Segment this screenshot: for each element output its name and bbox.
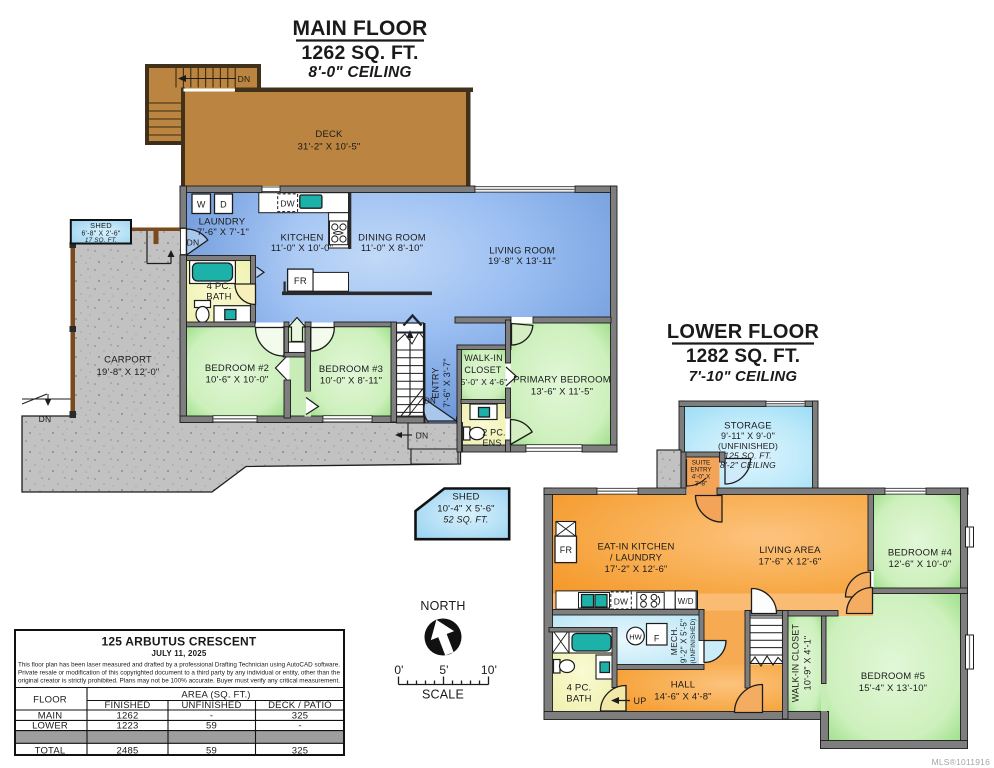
svg-text:DW: DW: [614, 597, 629, 607]
svg-text:(UNFINISHED): (UNFINISHED): [690, 618, 697, 663]
svg-text:SHED: SHED: [90, 221, 112, 230]
svg-text:8'-0" CEILING: 8'-0" CEILING: [308, 64, 411, 81]
svg-text:W/D: W/D: [678, 597, 694, 606]
svg-text:W: W: [197, 200, 206, 210]
svg-text:59: 59: [206, 721, 217, 732]
svg-text:SUITE: SUITE: [692, 460, 711, 467]
svg-text:LIVING AREA: LIVING AREA: [759, 545, 821, 556]
svg-text:125 ARBUTUS CRESCENT: 125 ARBUTUS CRESCENT: [102, 635, 257, 649]
svg-text:9'-11" X 9'-0": 9'-11" X 9'-0": [721, 431, 775, 441]
svg-text:CLOSET: CLOSET: [464, 365, 502, 375]
svg-text:10'-4" X 5'-6": 10'-4" X 5'-6": [437, 504, 495, 515]
svg-text:DINING ROOM: DINING ROOM: [358, 233, 426, 244]
svg-text:DECK: DECK: [315, 129, 343, 140]
svg-text:JULY 11, 2025: JULY 11, 2025: [151, 649, 206, 658]
svg-text:4'-0" X: 4'-0" X: [692, 474, 711, 481]
svg-text:DN: DN: [187, 238, 200, 248]
svg-text:13'-6" X 11'-5": 13'-6" X 11'-5": [531, 387, 593, 398]
svg-text:BEDROOM #4: BEDROOM #4: [888, 548, 952, 559]
svg-text:11'-0" X 10'-0": 11'-0" X 10'-0": [271, 243, 333, 254]
svg-text:Private resale or modification: Private resale or modification of this c…: [18, 670, 340, 677]
svg-text:FLOOR: FLOOR: [33, 695, 67, 706]
svg-text:10': 10': [481, 663, 497, 677]
svg-text:59: 59: [206, 745, 217, 756]
svg-text:17 SQ. FT.: 17 SQ. FT.: [85, 237, 117, 244]
svg-text:8'-2" CEILING: 8'-2" CEILING: [720, 460, 776, 470]
svg-text:STORAGE: STORAGE: [724, 421, 772, 432]
svg-text:10'-0" X 8'-11": 10'-0" X 8'-11": [320, 376, 382, 387]
svg-text:DW: DW: [280, 199, 295, 209]
svg-text:KITCHEN: KITCHEN: [280, 233, 323, 244]
svg-text:BEDROOM #3: BEDROOM #3: [319, 364, 383, 375]
svg-text:PRIMARY BEDROOM: PRIMARY BEDROOM: [513, 375, 611, 386]
svg-text:7'-6" X 3'-7": 7'-6" X 3'-7": [442, 358, 452, 407]
svg-text:LAUNDRY: LAUNDRY: [199, 217, 246, 228]
svg-text:DN: DN: [39, 414, 52, 424]
svg-text:SHED: SHED: [452, 492, 479, 503]
svg-text:14'-6" X 4'-8": 14'-6" X 4'-8": [654, 692, 712, 703]
svg-text:DN: DN: [238, 74, 251, 84]
svg-text:19'-8" X 13'-11": 19'-8" X 13'-11": [488, 256, 556, 267]
svg-text:ENTRY: ENTRY: [431, 367, 441, 398]
svg-text:EAT-IN KITCHEN: EAT-IN KITCHEN: [597, 542, 674, 553]
svg-text:4 PC.: 4 PC.: [567, 683, 592, 694]
svg-text:FR: FR: [560, 545, 573, 555]
svg-text:1282 SQ. FT.: 1282 SQ. FT.: [686, 346, 800, 367]
svg-text:125 SQ. FT.: 125 SQ. FT.: [724, 451, 772, 461]
svg-text:325: 325: [292, 710, 308, 721]
svg-text:CARPORT: CARPORT: [104, 355, 152, 366]
svg-text:10'-9" X 4'-1": 10'-9" X 4'-1": [803, 636, 813, 691]
svg-text:MAIN: MAIN: [38, 710, 63, 721]
svg-text:5': 5': [439, 663, 448, 677]
svg-text:7'-10" CEILING: 7'-10" CEILING: [689, 368, 798, 385]
svg-text:SCALE: SCALE: [422, 688, 464, 702]
svg-text:DN: DN: [416, 431, 429, 441]
svg-text:MAIN FLOOR: MAIN FLOOR: [293, 17, 428, 40]
svg-text:2485: 2485: [117, 745, 139, 756]
svg-text:MECH.: MECH.: [669, 627, 679, 655]
svg-text:9'-2" X 5'-5": 9'-2" X 5'-5": [680, 619, 689, 663]
svg-text:ENS: ENS: [482, 438, 501, 448]
svg-text:MLS®1011916: MLS®1011916: [932, 757, 990, 767]
svg-text:17'-6" X 12'-6": 17'-6" X 12'-6": [758, 557, 821, 568]
svg-text:F: F: [654, 634, 660, 644]
svg-text:4 PC.: 4 PC.: [207, 281, 232, 292]
svg-text:19'-8" X 12'-0": 19'-8" X 12'-0": [96, 367, 159, 378]
svg-text:31'-2" X 10'-5": 31'-2" X 10'-5": [297, 142, 360, 153]
svg-text:10'-6" X 10'-0": 10'-6" X 10'-0": [205, 375, 268, 386]
svg-text:17'-2" X 12'-6": 17'-2" X 12'-6": [604, 564, 667, 575]
svg-text:/ LAUNDRY: / LAUNDRY: [610, 553, 663, 564]
svg-text:5'-0" X 4'-6": 5'-0" X 4'-6": [461, 377, 508, 387]
svg-text:FR: FR: [294, 276, 307, 287]
svg-text:WALK-IN: WALK-IN: [464, 353, 503, 363]
svg-text:LOWER: LOWER: [32, 721, 68, 732]
svg-text:7'-6" X 7'-1": 7'-6" X 7'-1": [197, 227, 249, 238]
svg-text:BEDROOM #2: BEDROOM #2: [205, 363, 269, 374]
svg-text:AREA (SQ. FT.): AREA (SQ. FT.): [181, 690, 250, 701]
svg-text:325: 325: [292, 745, 308, 756]
svg-text:3'-8": 3'-8": [695, 481, 708, 488]
svg-text:(UNFINISHED): (UNFINISHED): [718, 441, 778, 451]
svg-text:12'-6" X 10'-0": 12'-6" X 10'-0": [888, 559, 951, 570]
svg-text:1223: 1223: [117, 721, 139, 732]
svg-text:BATH: BATH: [566, 694, 591, 705]
svg-text:LOWER FLOOR: LOWER FLOOR: [667, 321, 820, 343]
svg-text:ENTRY: ENTRY: [690, 467, 712, 474]
svg-text:HW: HW: [629, 632, 642, 641]
svg-text:This floor plan has been laser: This floor plan has been laser measured …: [18, 662, 340, 669]
svg-text:TOTAL: TOTAL: [35, 745, 66, 756]
svg-text:11'-0" X 8'-10": 11'-0" X 8'-10": [361, 243, 423, 254]
svg-text:-: -: [298, 721, 301, 732]
svg-text:D: D: [220, 200, 227, 210]
svg-text:0': 0': [394, 663, 403, 677]
svg-text:original creator is strictly p: original creator is strictly prohibited.…: [18, 678, 340, 685]
svg-text:-: -: [210, 710, 213, 721]
svg-text:1262: 1262: [117, 710, 139, 721]
svg-text:WALK-IN CLOSET: WALK-IN CLOSET: [791, 623, 801, 702]
svg-text:HALL: HALL: [671, 680, 696, 691]
svg-text:NORTH: NORTH: [420, 599, 465, 613]
svg-text:BEDROOM #5: BEDROOM #5: [861, 671, 925, 682]
svg-text:2 PC.: 2 PC.: [482, 428, 506, 438]
svg-text:BATH: BATH: [206, 292, 231, 303]
svg-text:1262 SQ. FT.: 1262 SQ. FT.: [301, 42, 418, 64]
svg-text:15'-4" X 13'-10": 15'-4" X 13'-10": [859, 683, 928, 694]
svg-text:52 SQ. FT.: 52 SQ. FT.: [443, 515, 488, 525]
svg-text:UP: UP: [634, 696, 647, 706]
svg-text:LIVING ROOM: LIVING ROOM: [489, 246, 555, 257]
